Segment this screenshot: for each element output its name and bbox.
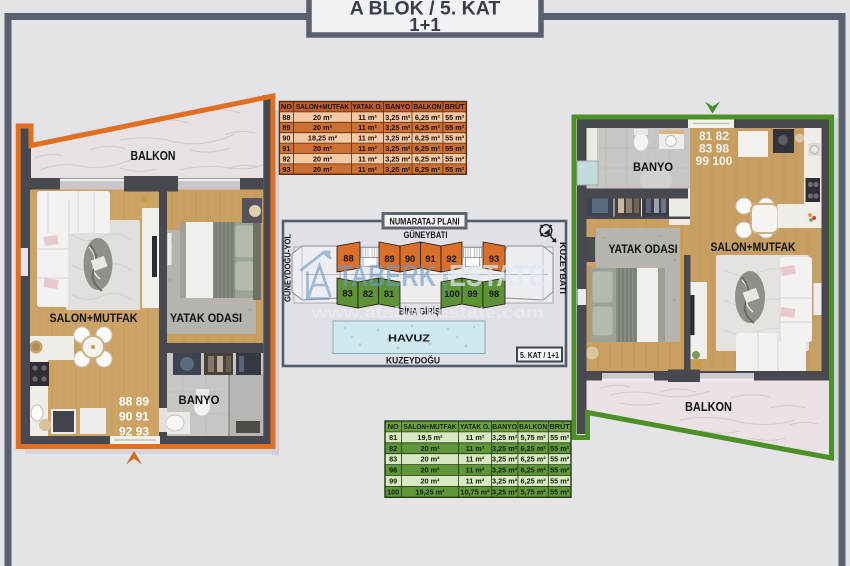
- svg-text:81: 81: [389, 433, 397, 442]
- svg-text:3,25 m²: 3,25 m²: [385, 113, 411, 122]
- svg-text:BALKON: BALKON: [131, 148, 176, 163]
- svg-text:1+1: 1+1: [409, 14, 440, 35]
- svg-text:BANYO: BANYO: [179, 393, 220, 407]
- svg-text:98: 98: [389, 466, 397, 475]
- svg-text:88: 88: [282, 113, 290, 122]
- svg-text:55 m²: 55 m²: [550, 487, 570, 496]
- svg-text:88 89: 88 89: [119, 395, 149, 409]
- svg-text:55 m²: 55 m²: [550, 433, 570, 442]
- svg-text:20 m²: 20 m²: [420, 477, 440, 486]
- svg-text:82: 82: [389, 444, 397, 453]
- svg-text:55 m²: 55 m²: [445, 113, 465, 122]
- svg-text:KUZEYDOĞU: KUZEYDOĞU: [386, 355, 440, 367]
- svg-text:20 m²: 20 m²: [420, 455, 440, 464]
- svg-text:YATAK ODASI: YATAK ODASI: [609, 242, 678, 256]
- svg-text:19,5 m²: 19,5 m²: [417, 433, 443, 442]
- svg-text:3,25 m²: 3,25 m²: [492, 477, 518, 486]
- svg-text:BRÜT: BRÜT: [444, 102, 465, 111]
- svg-text:99 100: 99 100: [696, 154, 733, 168]
- svg-text:GÜNEYDOĞU-YOL: GÜNEYDOĞU-YOL: [282, 234, 293, 302]
- svg-text:20 m²: 20 m²: [420, 444, 440, 453]
- svg-text:3,25 m²: 3,25 m²: [385, 154, 411, 163]
- svg-text:TABERK: TABERK: [338, 258, 436, 293]
- svg-text:11 m²: 11 m²: [358, 165, 377, 174]
- svg-text:55 m²: 55 m²: [445, 165, 465, 174]
- svg-text:3,25 m²: 3,25 m²: [385, 123, 411, 132]
- svg-text:BANYO: BANYO: [633, 160, 673, 174]
- svg-text:11 m²: 11 m²: [466, 444, 485, 453]
- svg-text:6,25 m²: 6,25 m²: [415, 134, 441, 143]
- svg-text:SALON+MUTFAK: SALON+MUTFAK: [50, 311, 138, 325]
- svg-text:18,25 m²: 18,25 m²: [308, 134, 338, 143]
- svg-text:3,25 m²: 3,25 m²: [385, 165, 411, 174]
- svg-text:11 m²: 11 m²: [358, 144, 377, 153]
- svg-text:NUMARATAJ PLANI: NUMARATAJ PLANI: [390, 217, 460, 228]
- svg-text:5,75 m²: 5,75 m²: [521, 433, 547, 442]
- svg-text:BANYO: BANYO: [385, 102, 410, 111]
- svg-text:SALON+MUTFAK: SALON+MUTFAK: [296, 102, 350, 111]
- svg-text:NO: NO: [388, 422, 399, 431]
- svg-text:5,75 m²: 5,75 m²: [521, 487, 547, 496]
- svg-text:11 m²: 11 m²: [358, 113, 377, 122]
- svg-text:BALKON: BALKON: [413, 102, 441, 111]
- svg-text:11 m²: 11 m²: [358, 123, 377, 132]
- svg-text:BALKON: BALKON: [519, 422, 547, 431]
- svg-text:3,25 m²: 3,25 m²: [492, 433, 518, 442]
- svg-text:KUZEYBATI: KUZEYBATI: [558, 242, 568, 294]
- svg-text:11 m²: 11 m²: [466, 433, 485, 442]
- svg-text:BRÜT: BRÜT: [549, 422, 570, 431]
- svg-text:99: 99: [389, 477, 397, 486]
- svg-text:SALON+MUTFAK: SALON+MUTFAK: [404, 422, 458, 431]
- svg-text:3,25 m²: 3,25 m²: [385, 144, 411, 153]
- svg-text:90 91: 90 91: [119, 410, 149, 424]
- svg-text:6,25 m²: 6,25 m²: [415, 165, 441, 174]
- svg-text:11 m²: 11 m²: [466, 466, 485, 475]
- svg-text:YATAK O.: YATAK O.: [353, 102, 383, 111]
- svg-text:EMLAK: EMLAK: [441, 269, 448, 294]
- svg-text:YATAK ODASI: YATAK ODASI: [170, 311, 242, 325]
- svg-text:SALON+MUTFAK: SALON+MUTFAK: [711, 240, 796, 254]
- svg-text:20 m²: 20 m²: [313, 123, 333, 132]
- svg-text:55 m²: 55 m²: [550, 477, 570, 486]
- svg-text:92: 92: [282, 154, 290, 163]
- svg-text:83: 83: [389, 455, 397, 464]
- svg-text:NO: NO: [281, 102, 292, 111]
- svg-text:89: 89: [282, 123, 290, 132]
- svg-text:ESTATE: ESTATE: [449, 258, 545, 293]
- svg-text:GÜNEYBATI: GÜNEYBATI: [404, 230, 448, 241]
- svg-text:93: 93: [282, 165, 290, 174]
- svg-text:6,25 m²: 6,25 m²: [521, 455, 547, 464]
- svg-text:20 m²: 20 m²: [313, 113, 333, 122]
- svg-text:6,25 m²: 6,25 m²: [415, 144, 441, 153]
- svg-text:www.ataberkestate.com: www.ataberkestate.com: [311, 304, 544, 322]
- svg-text:91: 91: [282, 144, 290, 153]
- svg-text:6,25 m²: 6,25 m²: [415, 113, 441, 122]
- svg-text:11 m²: 11 m²: [466, 455, 485, 464]
- svg-text:5. KAT / 1+1: 5. KAT / 1+1: [520, 350, 559, 360]
- svg-text:20 m²: 20 m²: [313, 165, 333, 174]
- svg-text:3,25 m²: 3,25 m²: [492, 455, 518, 464]
- svg-text:3,25 m²: 3,25 m²: [492, 444, 518, 453]
- svg-text:20 m²: 20 m²: [313, 144, 333, 153]
- svg-text:3,25 m²: 3,25 m²: [492, 466, 518, 475]
- svg-text:6,25 m²: 6,25 m²: [415, 123, 441, 132]
- svg-text:YATAK O.: YATAK O.: [460, 422, 490, 431]
- svg-text:19,25 m²: 19,25 m²: [415, 487, 445, 496]
- svg-text:11 m²: 11 m²: [358, 134, 377, 143]
- svg-text:55 m²: 55 m²: [550, 444, 570, 453]
- svg-text:3,25 m²: 3,25 m²: [385, 134, 411, 143]
- svg-text:BALKON: BALKON: [685, 399, 732, 414]
- svg-text:6,25 m²: 6,25 m²: [415, 154, 441, 163]
- svg-text:BANYO: BANYO: [492, 422, 517, 431]
- svg-text:6,25 m²: 6,25 m²: [521, 477, 547, 486]
- svg-text:90: 90: [282, 134, 290, 143]
- svg-text:55 m²: 55 m²: [550, 455, 570, 464]
- svg-text:55 m²: 55 m²: [445, 144, 465, 153]
- svg-text:HAVUZ: HAVUZ: [388, 333, 431, 345]
- svg-text:20 m²: 20 m²: [313, 154, 333, 163]
- svg-text:55 m²: 55 m²: [445, 154, 465, 163]
- svg-text:20 m²: 20 m²: [420, 466, 440, 475]
- svg-text:55 m²: 55 m²: [550, 466, 570, 475]
- svg-text:11 m²: 11 m²: [466, 477, 485, 486]
- svg-text:10,75 m²: 10,75 m²: [460, 487, 490, 496]
- svg-text:55 m²: 55 m²: [445, 134, 465, 143]
- svg-text:55 m²: 55 m²: [445, 123, 465, 132]
- svg-text:3,25 m²: 3,25 m²: [492, 487, 518, 496]
- svg-text:6,25 m²: 6,25 m²: [521, 466, 547, 475]
- svg-text:100: 100: [387, 487, 399, 496]
- svg-text:11 m²: 11 m²: [358, 154, 377, 163]
- svg-text:6,25 m²: 6,25 m²: [521, 444, 547, 453]
